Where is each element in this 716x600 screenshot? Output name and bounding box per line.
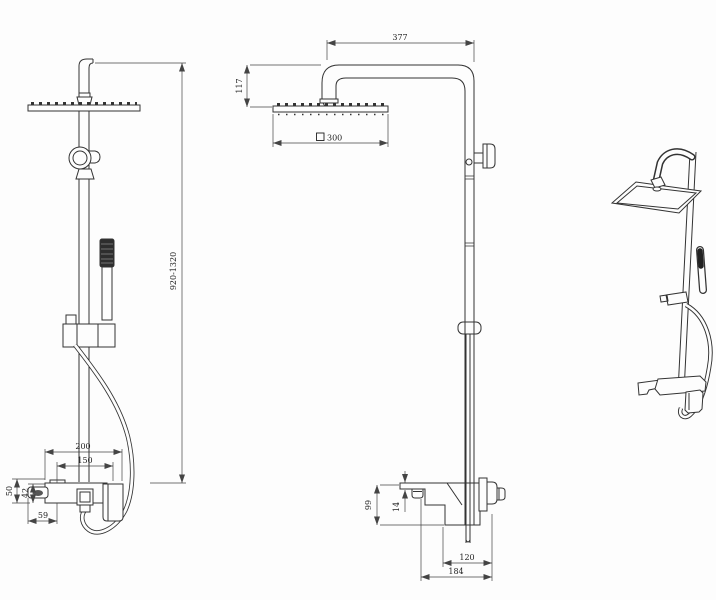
dim-mixer-depth: 99	[364, 500, 373, 510]
wall-knob	[497, 488, 505, 500]
perspective-view	[612, 152, 710, 417]
ring-connector	[458, 322, 481, 334]
persp-mixer-handle	[685, 390, 703, 413]
bracket-shaft	[474, 153, 483, 163]
mixer-body	[45, 483, 107, 503]
dim-mixer-width: 200	[75, 442, 90, 451]
dim-mixer-spout-width: 59	[38, 511, 48, 520]
rain-head	[28, 105, 140, 111]
rain-head-side	[273, 106, 388, 112]
mixer-spout-cap	[33, 490, 43, 496]
bracket-disc	[483, 144, 495, 168]
persp-head-nut	[653, 187, 661, 191]
dim-wall-offset: 120	[459, 553, 474, 562]
side-view	[273, 65, 505, 543]
dim-spout-lip-height: 14	[392, 502, 401, 512]
technical-drawing-canvas: 920-1320 200 150 50 42 59	[0, 0, 716, 600]
mixer-hose-connector	[80, 505, 90, 512]
dim-mixer-total-height: 50	[5, 486, 14, 496]
slider-bracket	[63, 324, 115, 347]
square-symbol	[317, 133, 325, 141]
persp-wand-head	[700, 251, 701, 266]
bracket-screw	[466, 159, 472, 165]
dim-overall-height: 920-1320	[169, 252, 178, 290]
slider-release-button	[66, 315, 76, 324]
persp-slider-bracket	[660, 292, 688, 305]
dim-mixer-centers: 150	[77, 456, 92, 465]
wall-disc	[487, 482, 497, 504]
shower-set-drawing: 920-1320 200 150 50 42 59	[0, 0, 716, 600]
wall-bracket-stem	[76, 169, 94, 179]
front-view-dimensions	[12, 63, 186, 524]
riser-pipe	[79, 59, 93, 482]
dim-head-drop: 117	[235, 78, 244, 93]
dim-head-size: 300	[327, 134, 342, 143]
shower-arm-and-riser	[322, 65, 474, 483]
ext-lines	[12, 63, 186, 524]
dim-mixer-body-height: 42	[21, 488, 30, 498]
mixer-handle	[103, 484, 123, 521]
mixer-diverter	[77, 489, 93, 505]
hand-shower-body	[102, 267, 112, 320]
dim-spout-reach: 184	[448, 567, 463, 576]
riser-joints	[465, 176, 474, 246]
dim-arm-length: 377	[392, 33, 407, 42]
wall-plate	[479, 478, 487, 511]
wall-bracket	[69, 147, 91, 169]
spout-aerator	[412, 489, 423, 498]
